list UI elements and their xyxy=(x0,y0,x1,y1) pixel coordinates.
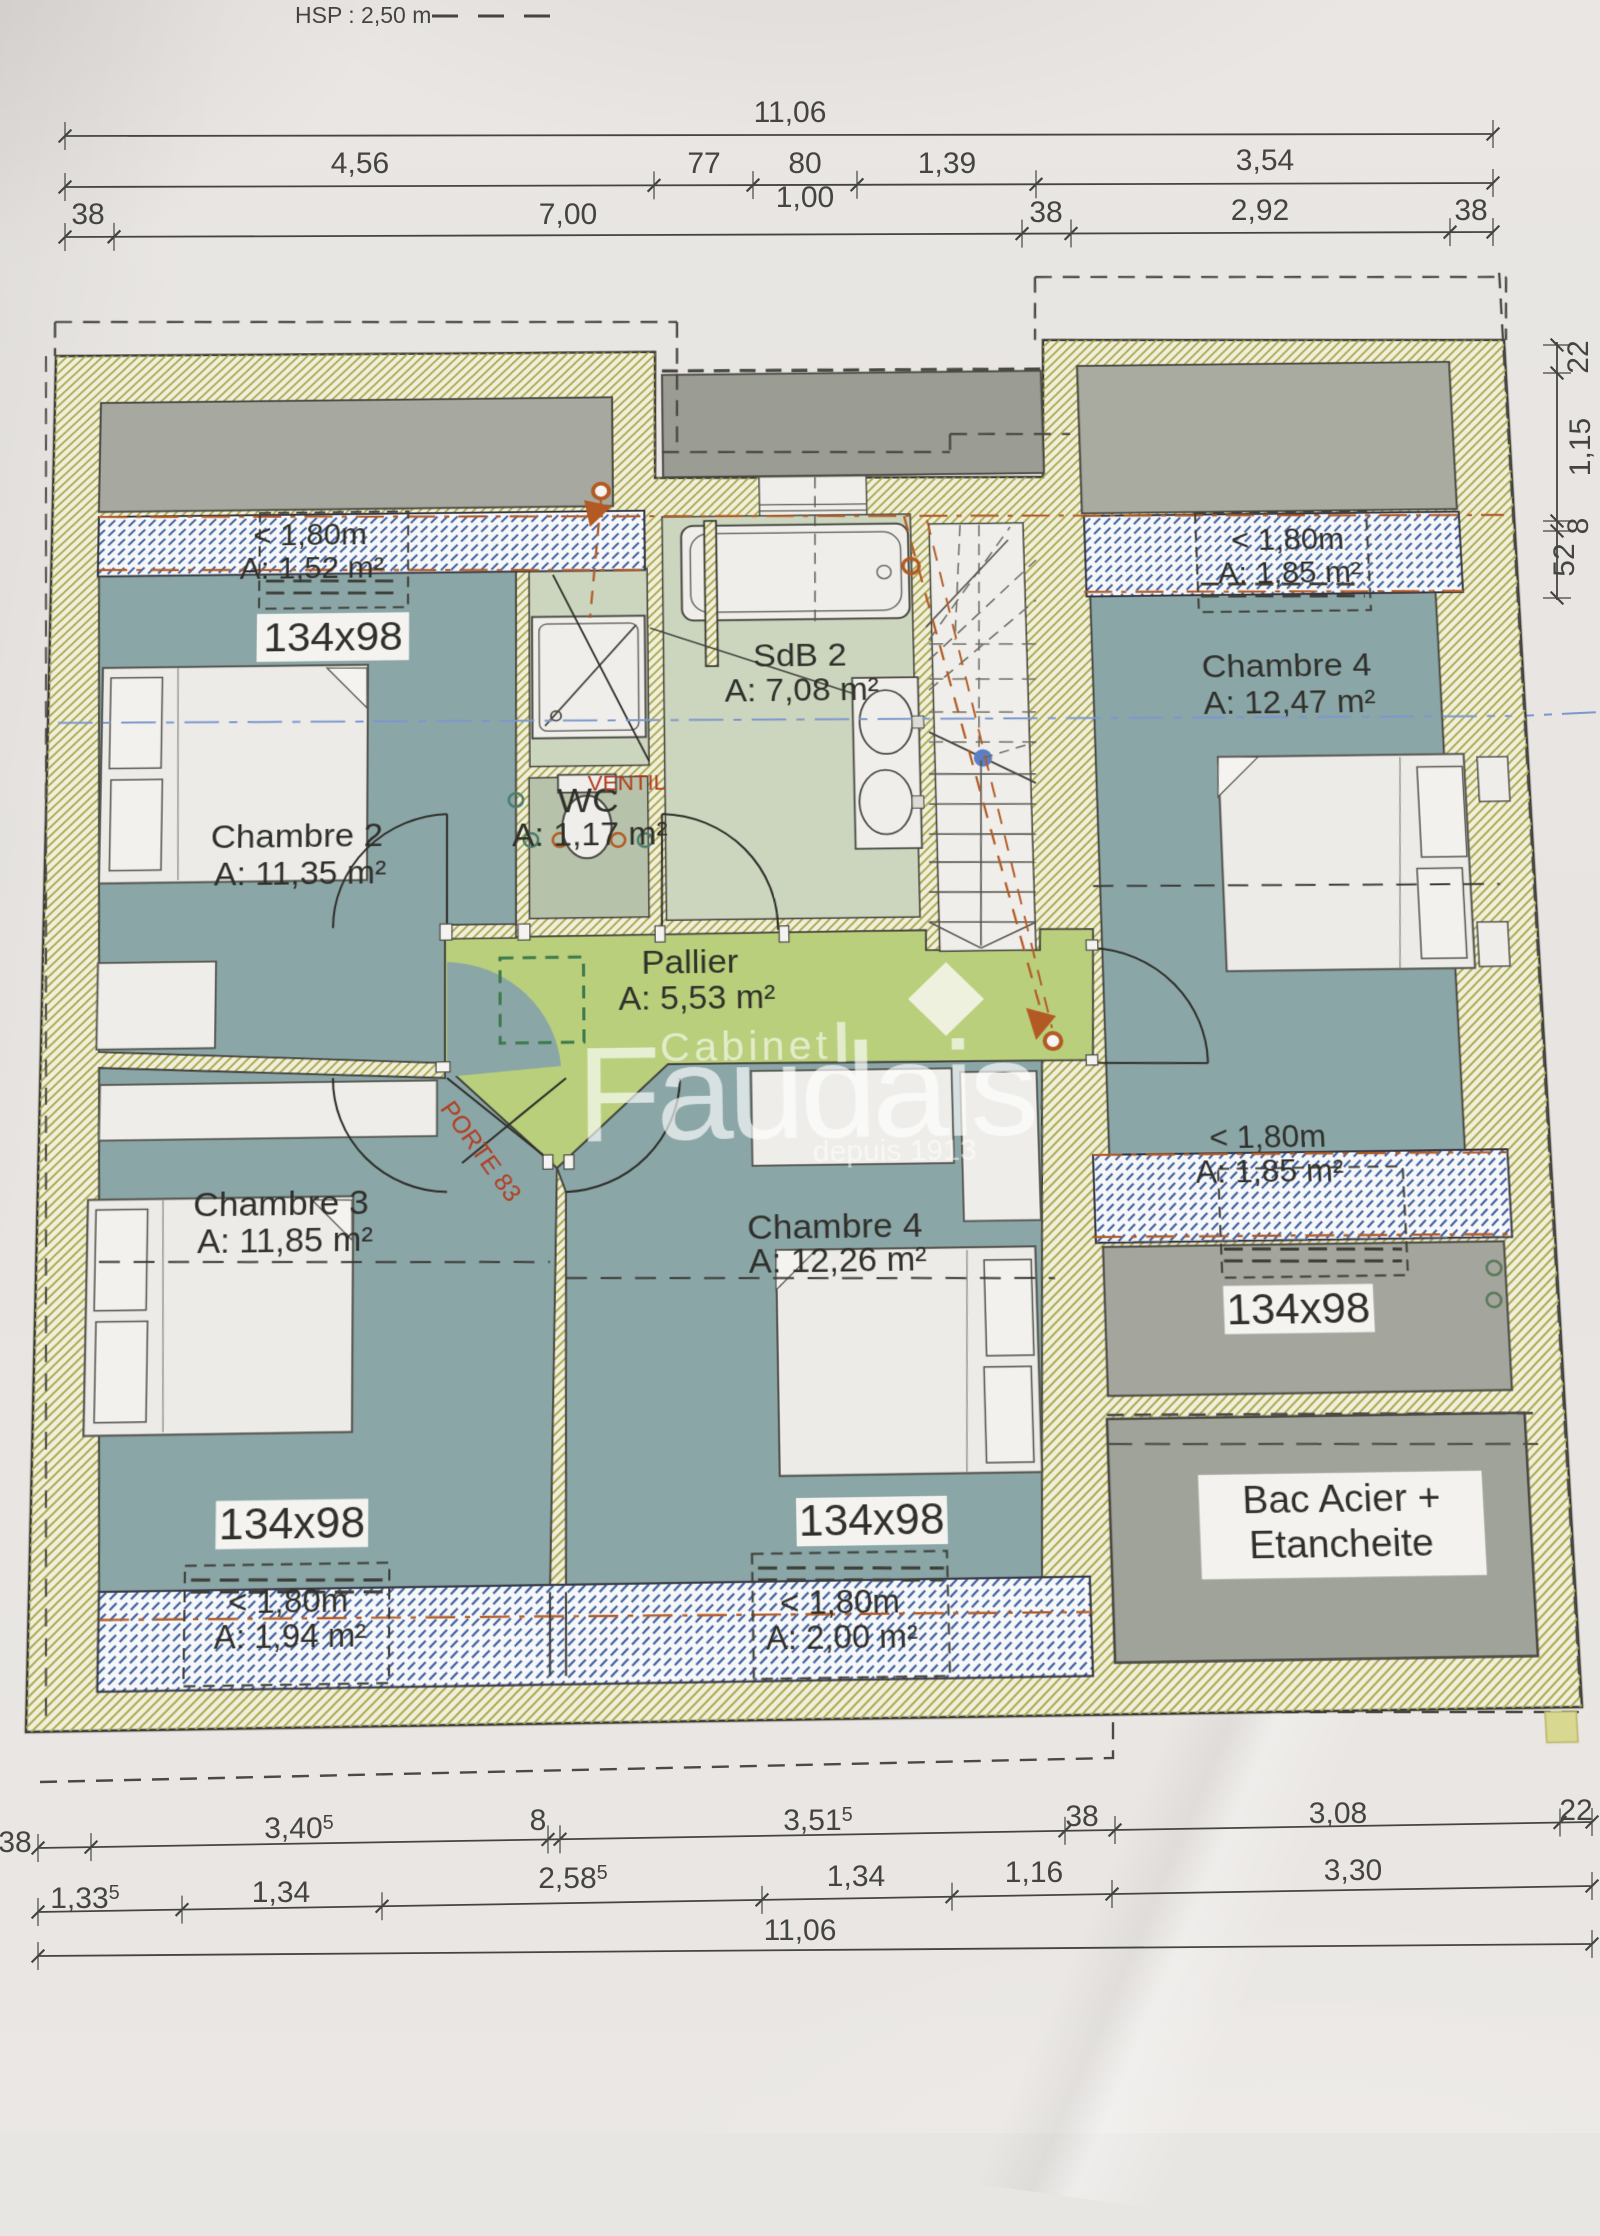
svg-text:< 1,80m: < 1,80m xyxy=(780,1584,901,1622)
svg-text:A: 1,94 m²: A: 1,94 m² xyxy=(213,1619,366,1658)
svg-text:A: 11,85 m²: A: 11,85 m² xyxy=(197,1220,373,1261)
svg-text:A: 7,08 m²: A: 7,08 m² xyxy=(724,671,879,709)
svg-text:Chambre 2: Chambre 2 xyxy=(211,816,384,856)
svg-text:depuis 1913: depuis 1913 xyxy=(812,1133,977,1169)
svg-text:A: 2,00 m²: A: 2,00 m² xyxy=(765,1619,918,1658)
svg-text:A: 1,85 m²: A: 1,85 m² xyxy=(1195,1154,1345,1190)
svg-text:A: 12,26 m²: A: 12,26 m² xyxy=(748,1240,927,1281)
svg-text:Pallier: Pallier xyxy=(641,942,739,981)
svg-text:A: 11,35 m²: A: 11,35 m² xyxy=(214,854,387,893)
svg-text:A: 1,17 m²: A: 1,17 m² xyxy=(512,815,668,853)
svg-text:134x98: 134x98 xyxy=(263,614,403,661)
svg-text:< 1,80m: < 1,80m xyxy=(1230,524,1344,558)
svg-text:HSP : 2,50 m: HSP : 2,50 m xyxy=(295,2,431,28)
svg-text:A: 5,53 m²: A: 5,53 m² xyxy=(618,978,775,1017)
svg-text:Etancheite: Etancheite xyxy=(1248,1521,1434,1567)
svg-text:Bac Acier +: Bac Acier + xyxy=(1241,1476,1441,1522)
svg-text:Chambre 3: Chambre 3 xyxy=(193,1182,369,1223)
svg-text:134x98: 134x98 xyxy=(219,1498,366,1549)
svg-text:< 1,80m: < 1,80m xyxy=(228,1584,349,1622)
svg-text:A: 1,85 m²: A: 1,85 m² xyxy=(1217,557,1362,591)
svg-text:< 1,80m: < 1,80m xyxy=(253,519,367,553)
svg-text:< 1,80m: < 1,80m xyxy=(1209,1120,1327,1156)
svg-text:SdB 2: SdB 2 xyxy=(753,636,847,674)
svg-text:134x98: 134x98 xyxy=(1226,1284,1372,1334)
svg-text:Chambre 4: Chambre 4 xyxy=(1201,645,1372,684)
svg-text:134x98: 134x98 xyxy=(798,1495,945,1546)
svg-text:A: 12,47 m²: A: 12,47 m² xyxy=(1203,683,1377,721)
svg-text:A: 1,52 m²: A: 1,52 m² xyxy=(240,552,385,586)
svg-text:VENTIL: VENTIL xyxy=(588,771,667,796)
